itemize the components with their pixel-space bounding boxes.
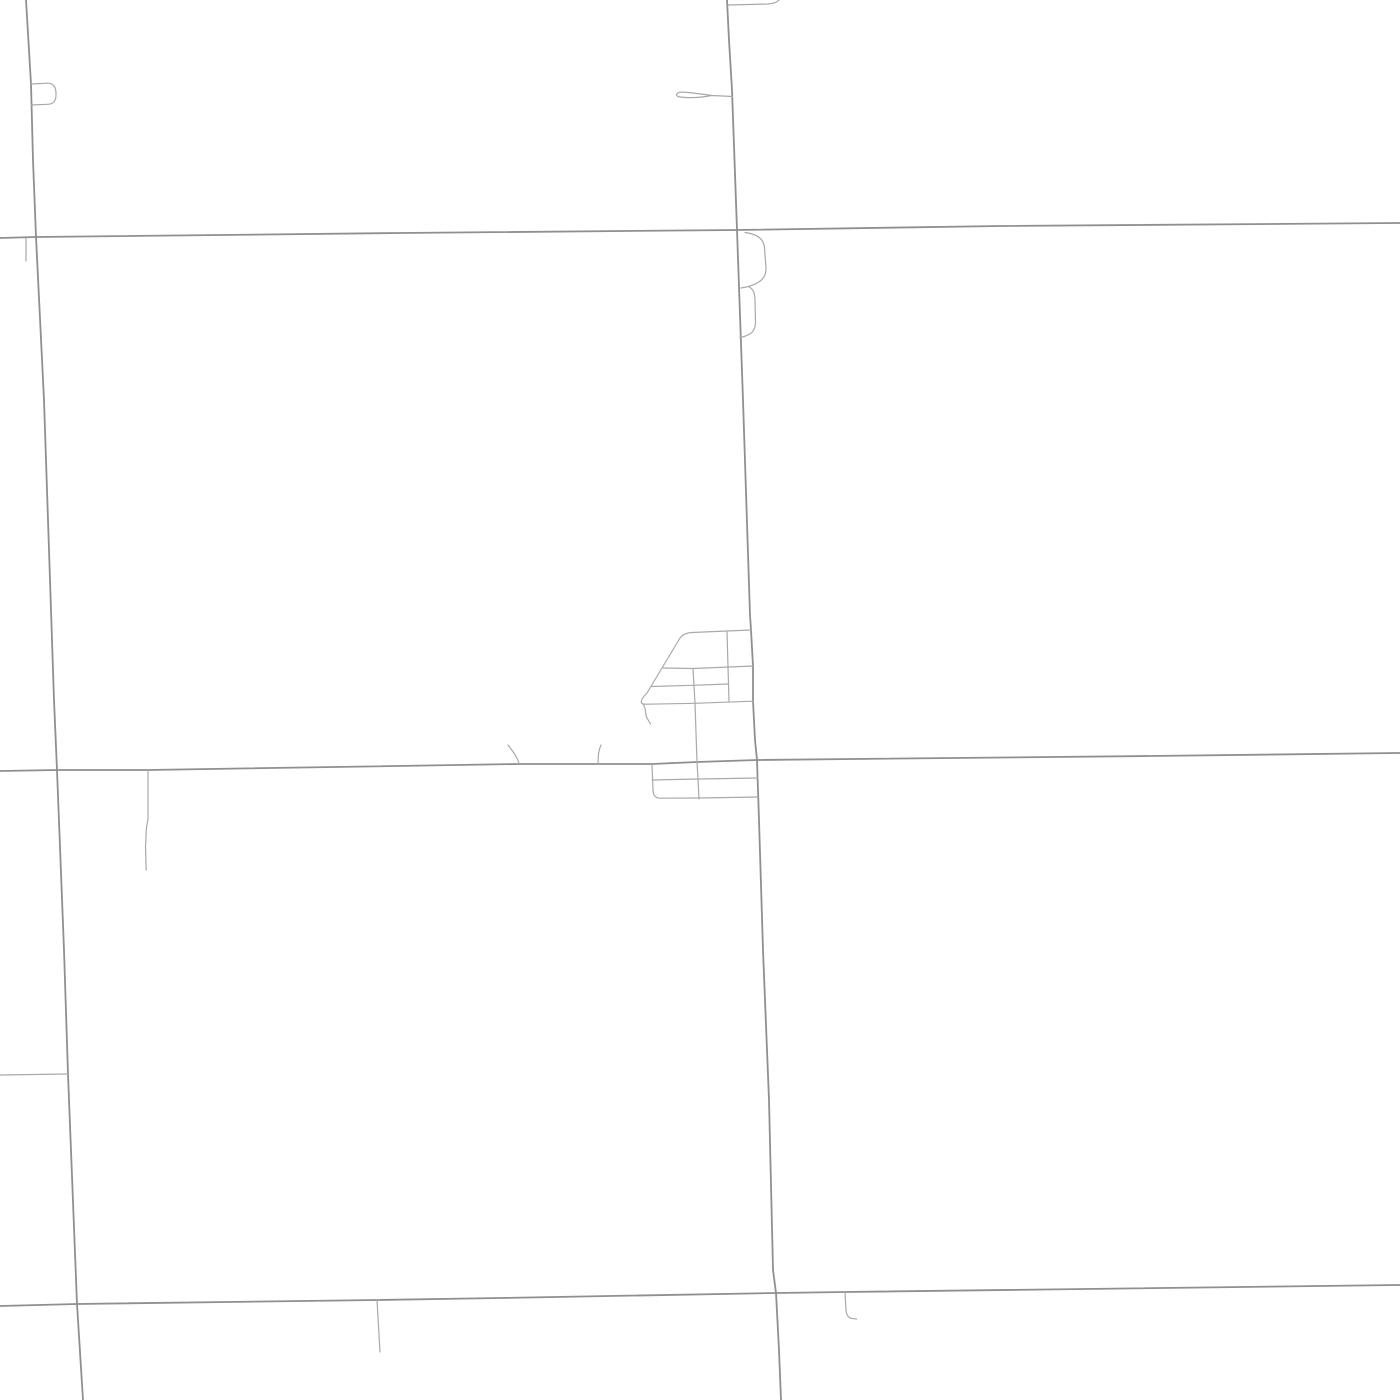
road-map-canvas xyxy=(0,0,1400,1400)
map-viewport xyxy=(0,0,1400,1400)
map-background xyxy=(0,0,1400,1400)
